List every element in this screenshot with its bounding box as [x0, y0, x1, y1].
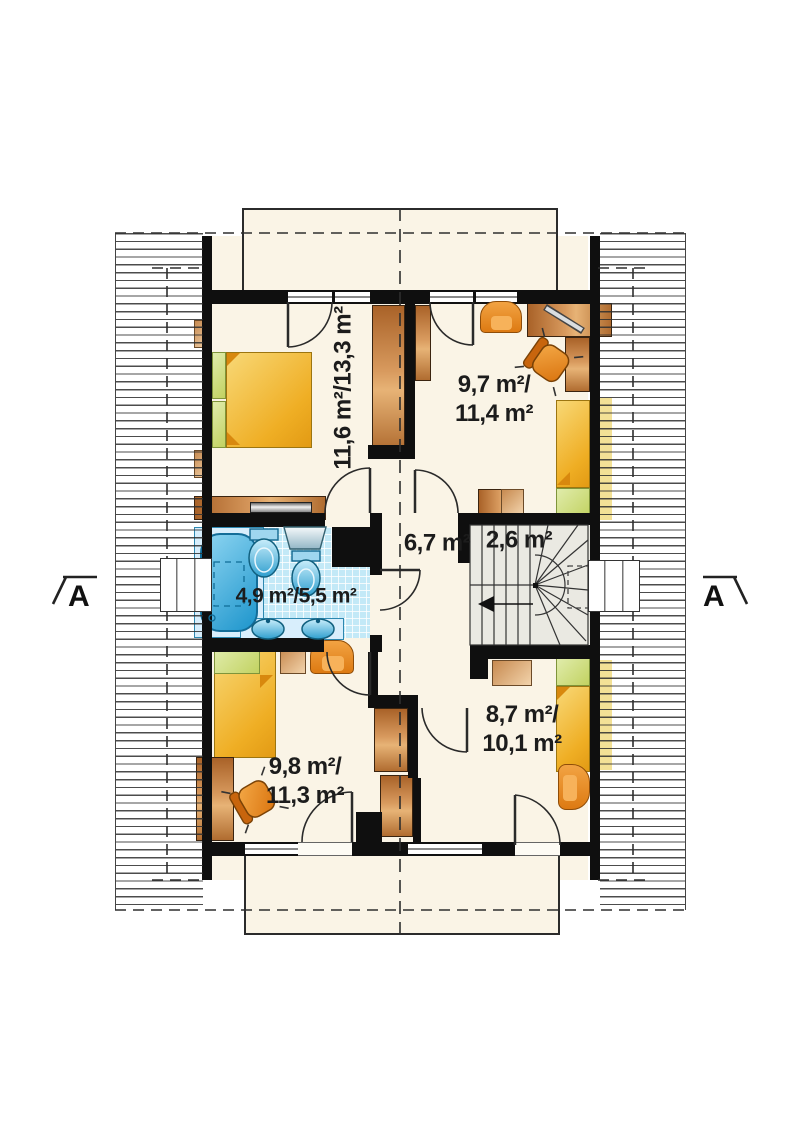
area-line: 10,1 m²: [482, 730, 561, 757]
desk-return: [565, 337, 590, 392]
window-mullion: [332, 290, 335, 304]
wall-segment: [470, 659, 488, 679]
balcony-dormer-top: [242, 208, 558, 292]
wardrobe: [372, 305, 405, 452]
wall-segment: [368, 445, 415, 459]
double-bed-headboard: [212, 352, 226, 399]
armchair-seat: [322, 656, 344, 671]
floor-plan-canvas: 11,6 m²/13,3 m² 9,7 m²/ 11,4 m² 6,7 m² 2…: [0, 0, 800, 1143]
double-bed: [226, 352, 312, 448]
wall-segment: [212, 638, 324, 652]
wall-segment: [212, 513, 325, 527]
area-line: 8,7 m²/: [486, 701, 559, 728]
armchair: [558, 764, 590, 810]
double-bed-headboard: [212, 401, 226, 448]
area-label-bedroom-bottom-right: 8,7 m²/ 10,1 m²: [482, 700, 561, 758]
wall-segment: [408, 708, 418, 778]
tv-screen: [250, 502, 312, 513]
wall-segment: [368, 695, 418, 708]
door-opening: [515, 842, 560, 856]
bed-side-shelf: [598, 660, 612, 770]
area-label-bedroom-top-left: 11,6 m²/13,3 m²: [329, 306, 358, 469]
area-line: 11,4 m²: [455, 400, 533, 427]
single-bed-pillow: [556, 658, 590, 686]
wall-segment: [482, 842, 515, 856]
window: [245, 842, 298, 856]
wall-segment: [370, 513, 382, 575]
wall-segment: [517, 290, 590, 304]
bed-side-shelf: [598, 398, 612, 520]
area-label-bedroom-top-right: 9,7 m²/ 11,4 m²: [455, 370, 533, 428]
bathroom-window: [160, 558, 212, 612]
area-label-staircase: 2,6 m²: [486, 526, 552, 555]
nightstand: [492, 660, 532, 686]
wall-segment: [356, 812, 382, 842]
single-bed: [556, 400, 590, 488]
balcony-door-window: [288, 290, 370, 304]
duct-shaft: [332, 527, 370, 567]
area-line: 9,7 m²/: [458, 371, 531, 398]
dormer-bottom: [244, 850, 560, 935]
wall-segment: [212, 290, 288, 304]
section-marker-left: A: [68, 580, 90, 614]
chest-of-drawers: [501, 489, 524, 515]
wall-segment: [370, 635, 382, 652]
wall-segment: [352, 842, 408, 856]
wardrobe: [380, 775, 413, 837]
staircase-window: [588, 560, 640, 612]
wall-segment: [413, 778, 421, 842]
section-marker-right: A: [703, 580, 725, 614]
wall-segment: [370, 290, 430, 304]
area-label-bedroom-bottom-left: 9,8 m²/ 11,3 m²: [266, 752, 344, 810]
window-mullion: [473, 290, 476, 304]
wall-segment: [212, 842, 245, 856]
wall-segment: [590, 236, 600, 880]
wall-segment: [560, 842, 590, 856]
area-label-bathroom: 4,9 m²/5,5 m²: [236, 582, 357, 611]
wardrobe: [374, 708, 408, 772]
area-line: 11,3 m²: [266, 782, 344, 809]
window: [408, 842, 482, 856]
wall-segment: [405, 302, 415, 452]
wall-segment: [458, 513, 590, 525]
area-label-hall: 6,7 m²: [404, 529, 470, 558]
armchair-seat: [491, 316, 512, 330]
armchair-seat: [563, 775, 577, 801]
wall-segment: [470, 645, 590, 659]
area-line: 9,8 m²/: [269, 753, 342, 780]
armchair: [480, 301, 522, 333]
wardrobe: [415, 305, 431, 381]
door-opening: [298, 842, 352, 856]
